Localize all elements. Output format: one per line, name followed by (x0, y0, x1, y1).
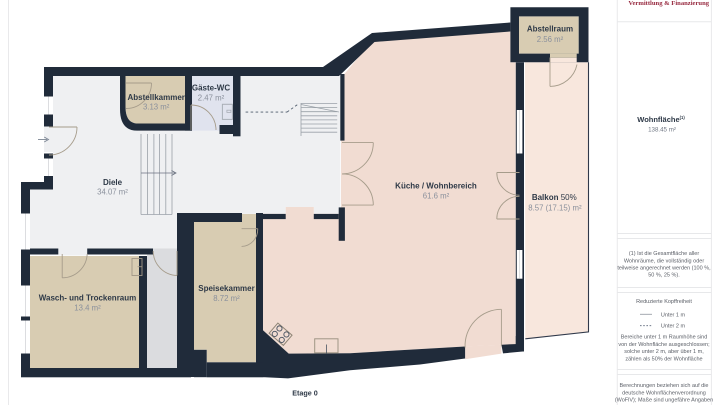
svg-text:Abstellkammer: Abstellkammer (128, 93, 185, 102)
svg-text:61.6 m²: 61.6 m² (423, 191, 450, 200)
svg-text:8.57 (17.15) m²: 8.57 (17.15) m² (528, 203, 582, 212)
svg-text:Wasch- und Trockenraum: Wasch- und Trockenraum (39, 293, 137, 302)
svg-text:34.07 m²: 34.07 m² (97, 188, 128, 197)
svg-text:Vermittlung & Finanzierung: Vermittlung & Finanzierung (628, 0, 709, 7)
svg-text:deutsche Wohnflächenverordnung: deutsche Wohnflächenverordnung (622, 390, 706, 396)
svg-text:3.13 m²: 3.13 m² (143, 103, 170, 112)
svg-text:Balkon 50%: Balkon 50% (532, 193, 577, 202)
svg-text:Wohnfläche(1): Wohnfläche(1) (637, 115, 685, 124)
svg-text:Wohnräume, die vollständig ode: Wohnräume, die vollständig oder (624, 258, 704, 264)
svg-text:Abstellraum: Abstellraum (527, 25, 573, 34)
svg-text:Speisekammer: Speisekammer (198, 284, 254, 293)
svg-text:Unter 2 m: Unter 2 m (661, 324, 686, 330)
svg-text:13.4 m²: 13.4 m² (74, 303, 101, 312)
svg-text:Etage 0: Etage 0 (292, 389, 318, 398)
svg-text:von der Wohnfläche ausgeschlos: von der Wohnfläche ausgeschlossen; (618, 342, 710, 348)
svg-text:(WoFlV); Maße sind ungefähre A: (WoFlV); Maße sind ungefähre Angaben (615, 398, 713, 404)
svg-text:teilweise angerechnet werden (: teilweise angerechnet werden (100 %, (617, 266, 711, 272)
svg-text:Gäste-WC: Gäste-WC (192, 84, 230, 93)
svg-text:Reduzierte Kopffreiheit: Reduzierte Kopffreiheit (636, 299, 692, 305)
svg-text:Unter 1 m: Unter 1 m (661, 312, 686, 318)
svg-text:2.56 m²: 2.56 m² (537, 35, 564, 44)
svg-text:(1) Ist die Gesamtfläche aller: (1) Ist die Gesamtfläche aller (629, 251, 699, 257)
svg-text:50 %, 25 %).: 50 %, 25 %). (648, 273, 680, 279)
svg-text:2.47 m²: 2.47 m² (198, 93, 225, 102)
svg-text:zählen als 50% der Wohnfläche: zählen als 50% der Wohnfläche (625, 356, 702, 362)
svg-text:Diele: Diele (103, 178, 123, 187)
svg-text:8.72 m²: 8.72 m² (213, 294, 240, 303)
svg-text:Küche / Wohnbereich: Küche / Wohnbereich (395, 182, 477, 191)
svg-text:Berechnungen beziehen sich auf: Berechnungen beziehen sich auf die (620, 383, 709, 389)
svg-text:Bereiche unter 1 m Raumhöhe si: Bereiche unter 1 m Raumhöhe sind (621, 335, 708, 341)
svg-text:solche unter 2 m, aber über 1: solche unter 2 m, aber über 1 m, (624, 349, 704, 355)
svg-text:138.45 m²: 138.45 m² (648, 127, 676, 134)
